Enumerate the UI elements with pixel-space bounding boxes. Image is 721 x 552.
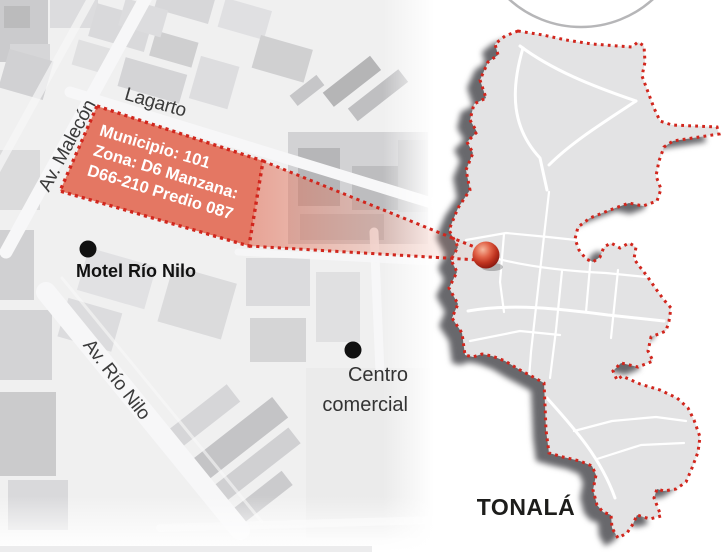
magnifier-circle-arc	[474, 0, 688, 27]
infographic-canvas	[0, 0, 721, 552]
satellite-image	[0, 0, 448, 552]
poi-dot-centro-comercial	[345, 342, 362, 359]
tonala-map	[449, 31, 719, 538]
locator-infographic: Lagarto Av. Malecón Av. Río Nilo Motel R…	[0, 0, 721, 552]
poi-dot-motel	[80, 241, 97, 258]
bottom-edge-strip	[0, 546, 372, 552]
location-marker-ball	[473, 242, 500, 269]
